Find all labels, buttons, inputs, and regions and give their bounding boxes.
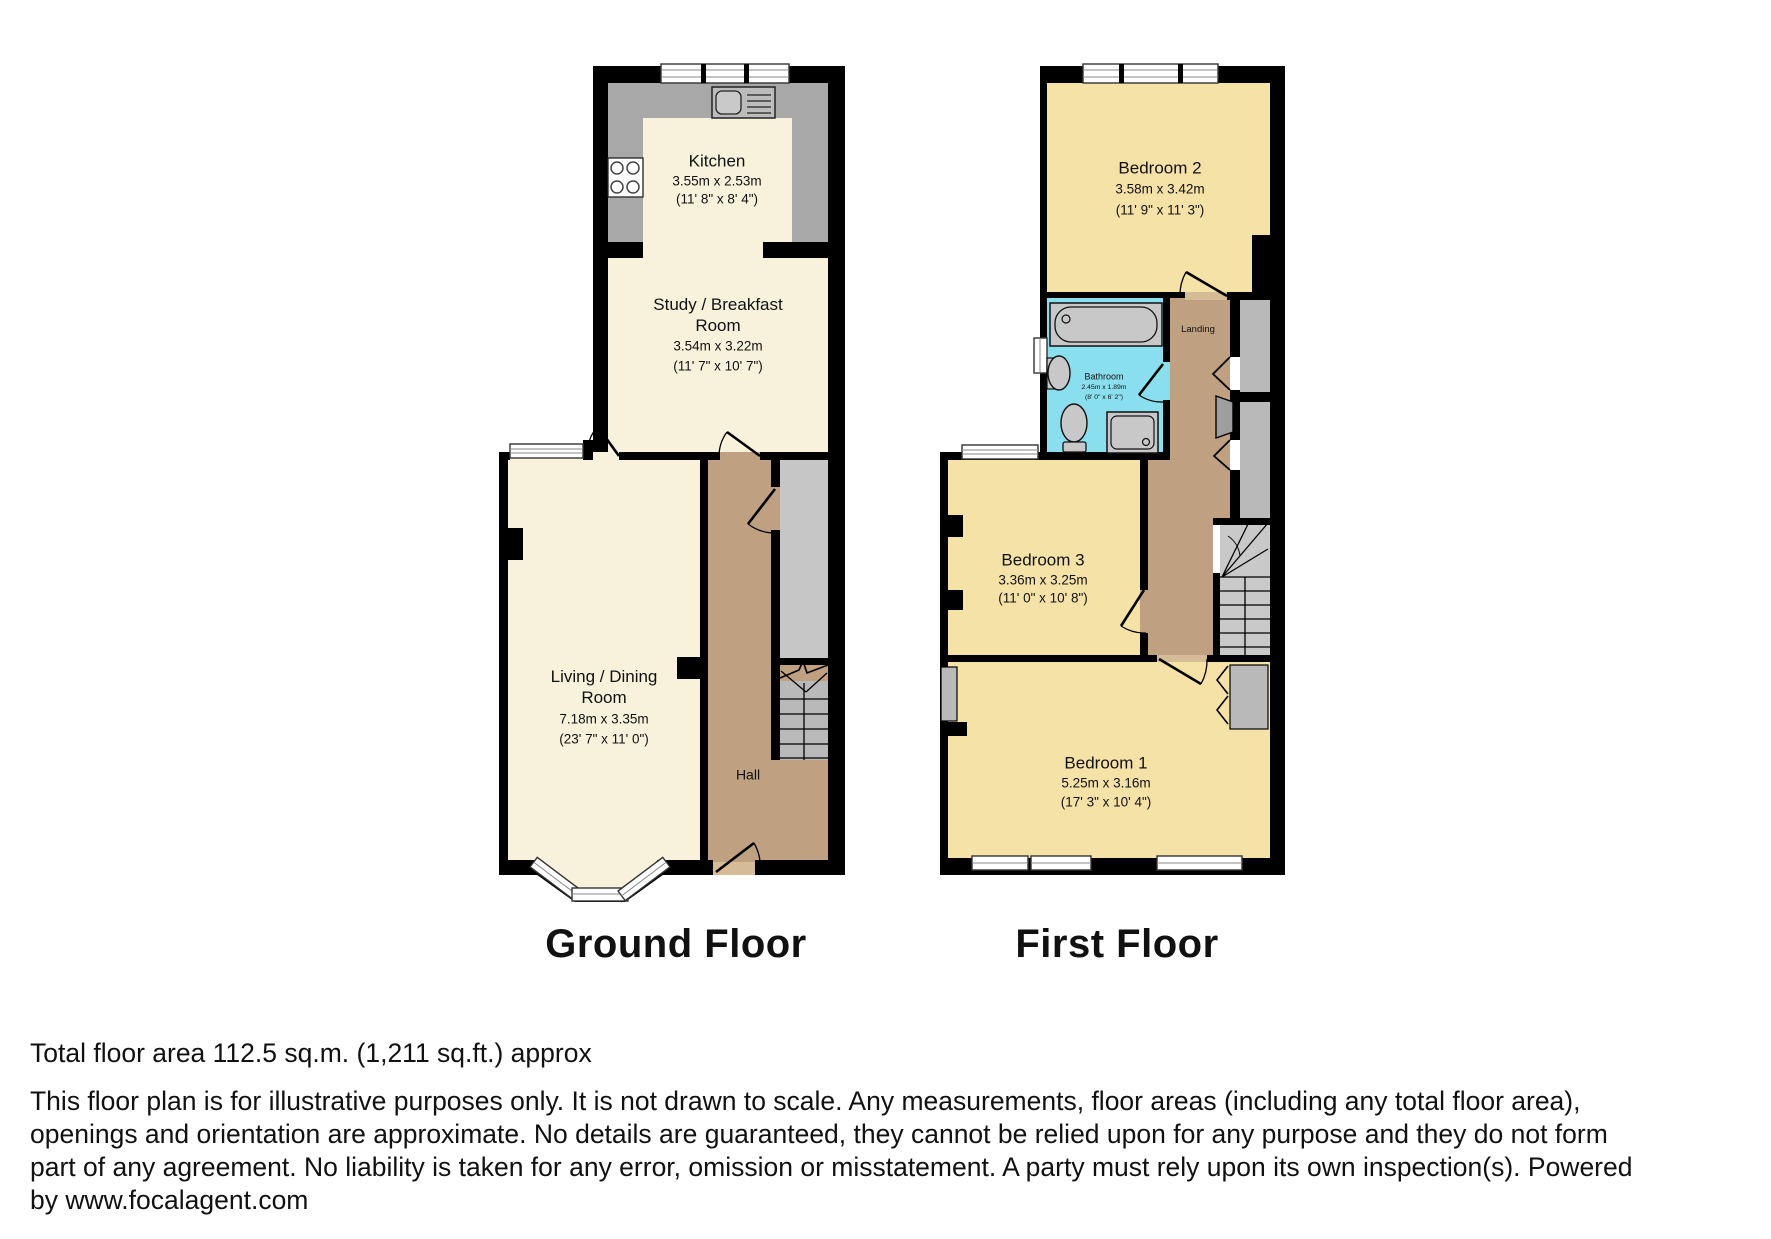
cupboard: [941, 667, 957, 721]
cupboard: [1230, 665, 1268, 729]
living-label: Living / Dining Room: [534, 666, 674, 708]
bath-icon: [1050, 303, 1162, 346]
window: [972, 856, 1028, 870]
window: [1031, 856, 1091, 870]
disclaimer-line: openings and orientation are approximate…: [30, 1119, 1608, 1150]
disclaimer-line: part of any agreement. No liability is t…: [30, 1152, 1633, 1183]
hob-icon: [608, 158, 643, 197]
disclaimer-line: This floor plan is for illustrative purp…: [30, 1086, 1580, 1117]
shower-icon: [1107, 412, 1158, 453]
study-metric: 3.54m x 3.22m: [673, 339, 762, 356]
window: [510, 444, 583, 458]
kitchen-imperial: (11' 8" x 8' 4"): [676, 192, 758, 209]
bathroom-metric: 2.45m x 1.89m: [1082, 384, 1127, 392]
bedroom1-label: Bedroom 1: [1064, 752, 1147, 773]
cupboard: [1240, 400, 1270, 518]
ground-floor-title: Ground Floor: [545, 919, 807, 969]
total-floor-area: Total floor area 112.5 sq.m. (1,211 sq.f…: [30, 1038, 592, 1069]
window: [1034, 338, 1047, 373]
bedroom2-label: Bedroom 2: [1118, 157, 1201, 178]
bedroom3-label: Bedroom 3: [1001, 549, 1084, 570]
kitchen-label: Kitchen: [689, 150, 746, 171]
disclaimer-line: by www.focalagent.com: [30, 1185, 308, 1216]
bedroom2-imperial: (11' 9" x 11' 3"): [1116, 203, 1205, 220]
bedroom1-metric: 5.25m x 3.16m: [1061, 776, 1150, 793]
sink-icon: [712, 87, 775, 118]
hall-label: Hall: [736, 766, 760, 784]
kitchen-metric: 3.55m x 2.53m: [672, 174, 761, 191]
landing-label: Landing: [1181, 324, 1215, 336]
living-metric: 7.18m x 3.35m: [559, 712, 648, 729]
window: [1083, 64, 1218, 83]
living-imperial: (23' 7" x 11' 0"): [559, 732, 649, 749]
window: [661, 64, 789, 83]
study-label: Study / Breakfast Room: [633, 294, 803, 336]
window: [1157, 856, 1242, 870]
bathroom-imperial: (8' 0" x 6' 2"): [1085, 394, 1123, 402]
floorplan-page: Kitchen 3.55m x 2.53m (11' 8" x 8' 4") S…: [0, 0, 1771, 1239]
bedroom3-metric: 3.36m x 3.25m: [998, 573, 1087, 590]
bedroom3-imperial: (11' 0" x 10' 8"): [998, 591, 1088, 608]
window: [962, 445, 1038, 459]
bedroom2-metric: 3.58m x 3.42m: [1115, 182, 1204, 199]
stair-passage-floor: [780, 460, 828, 658]
cupboard: [1240, 298, 1270, 392]
toilet-icon: [1061, 404, 1087, 452]
first-floor-title: First Floor: [1015, 919, 1218, 969]
study-imperial: (11' 7" x 10' 7"): [673, 359, 763, 376]
bathroom-label: Bathroom: [1084, 371, 1123, 382]
bedroom1-imperial: (17' 3" x 10' 4"): [1061, 795, 1152, 812]
basin-icon: [1047, 356, 1070, 390]
cupboard: [1216, 396, 1233, 438]
